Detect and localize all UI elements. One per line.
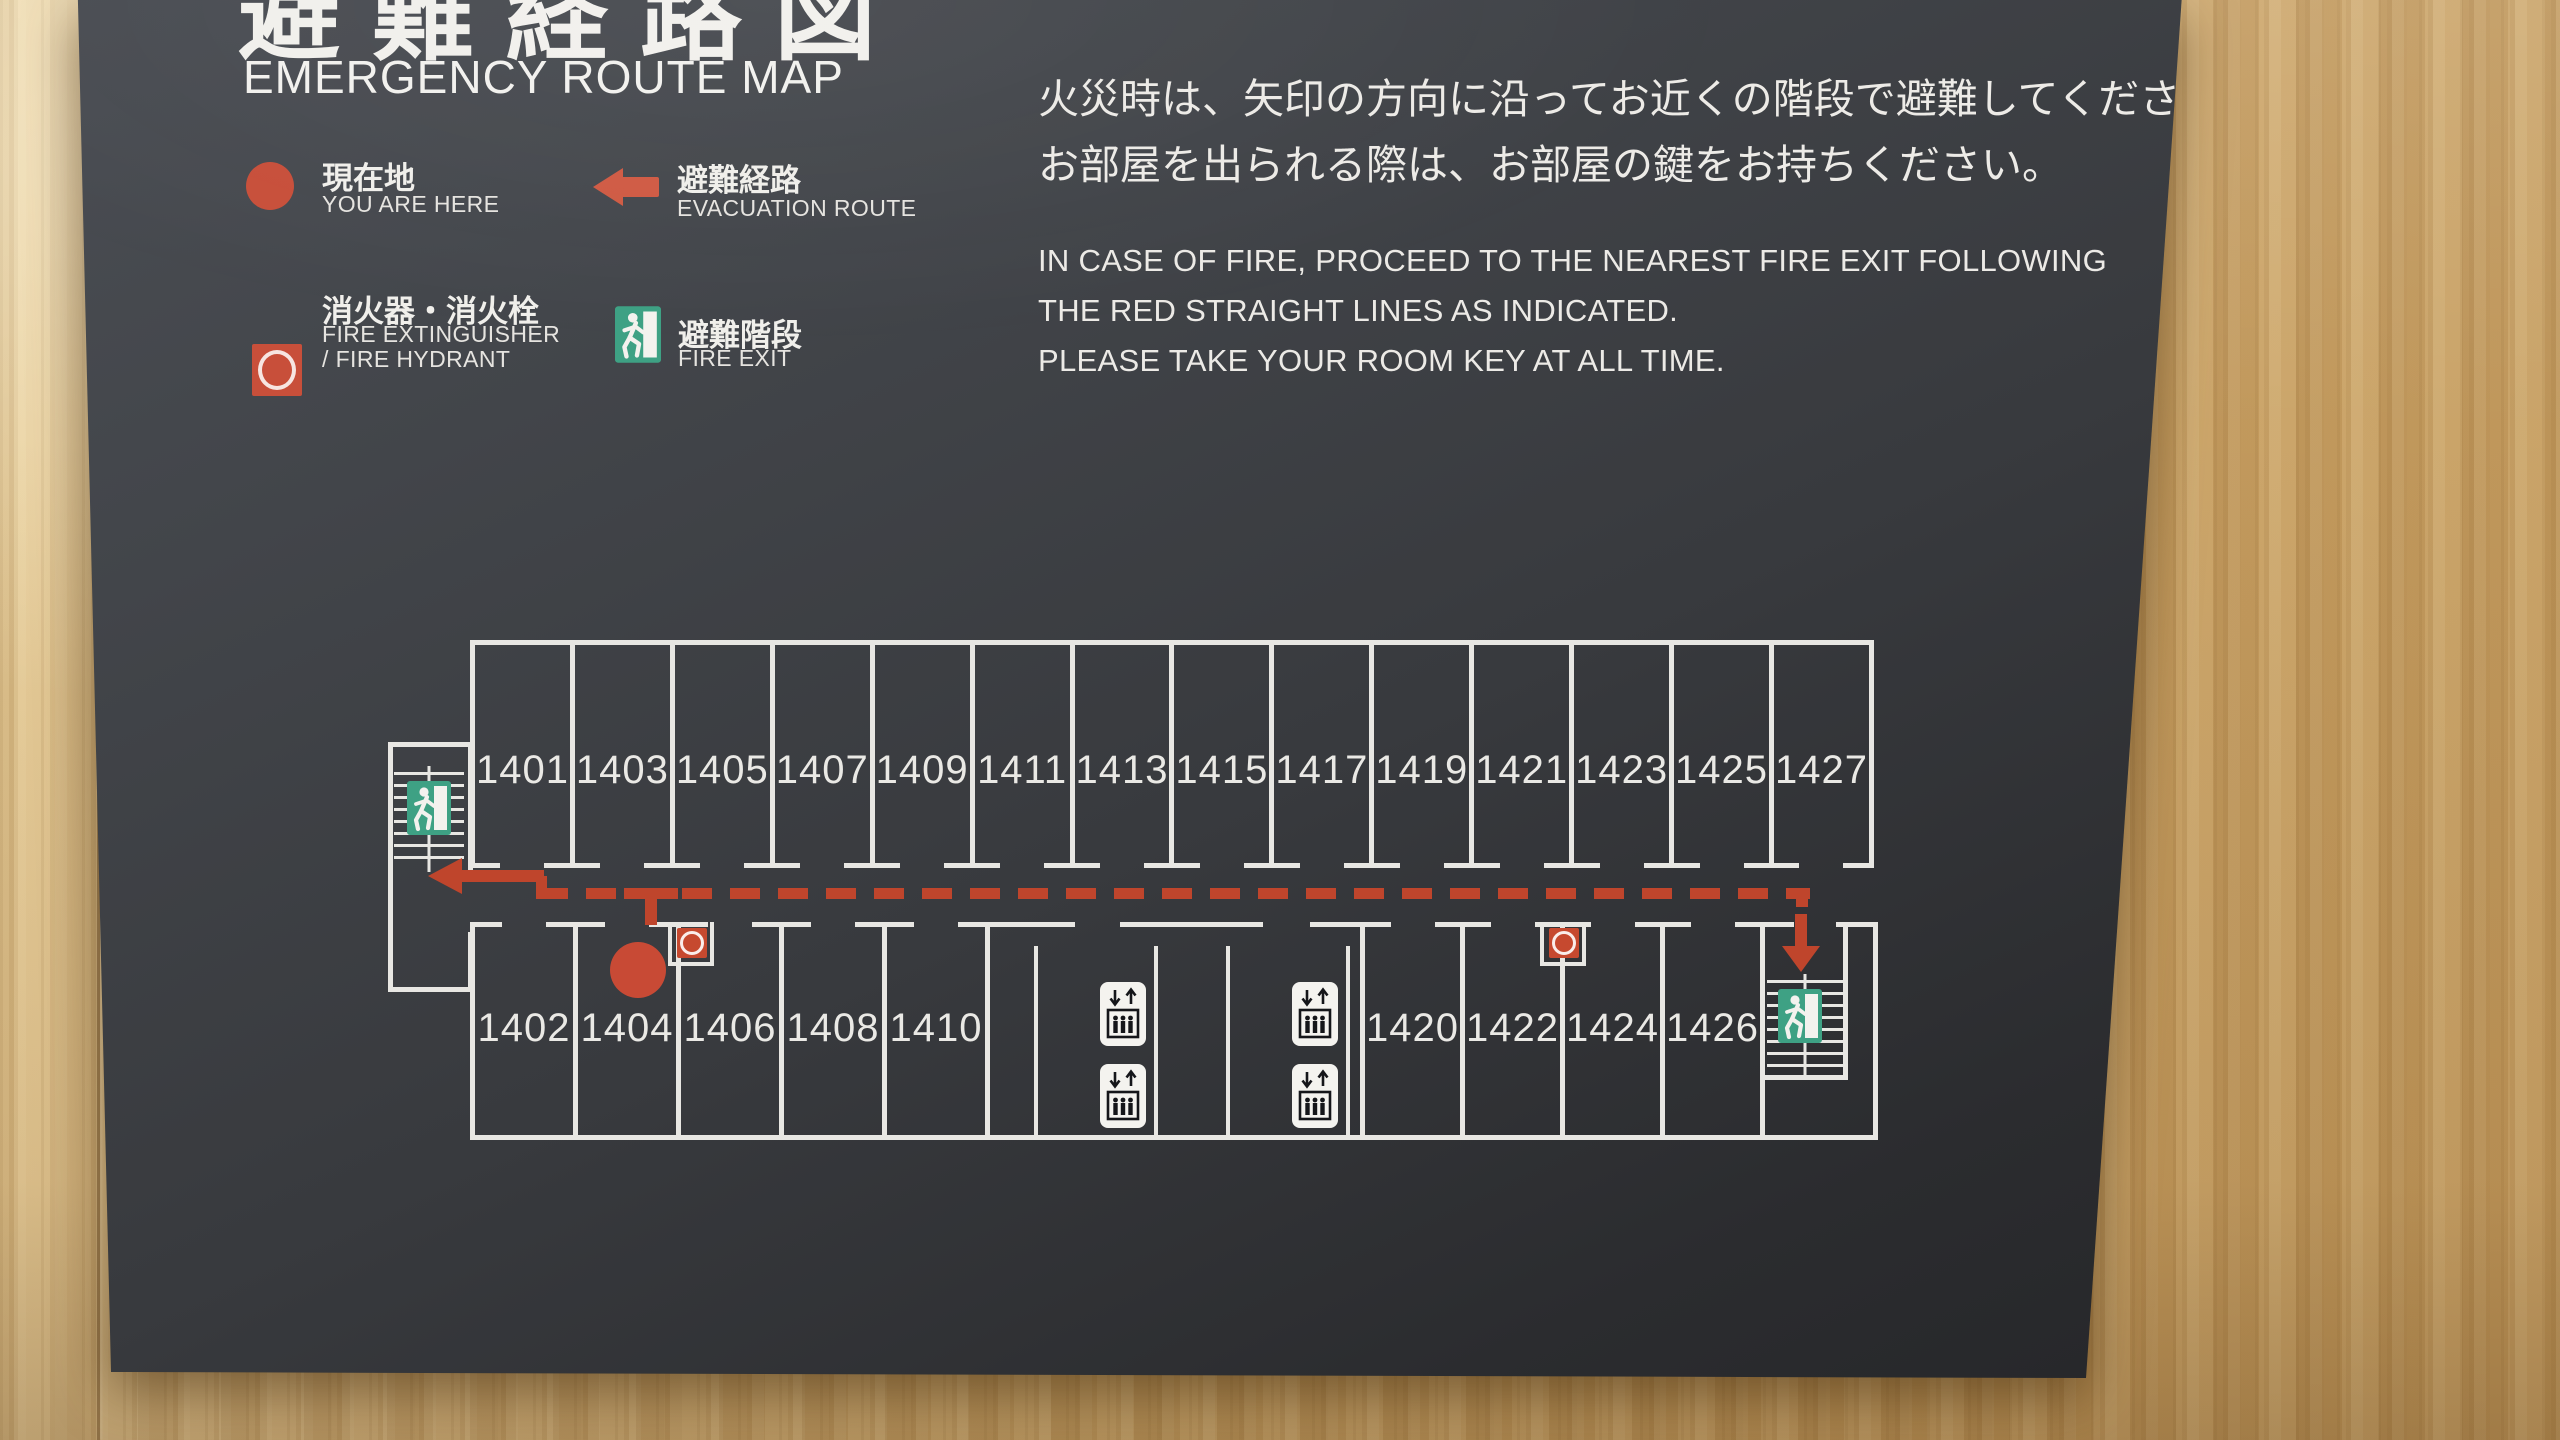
room-cell: 1405 — [670, 645, 770, 868]
room-cell: 1403 — [570, 645, 670, 868]
evacuation-arrow-left-icon — [428, 858, 462, 894]
room-cell: 1423 — [1569, 645, 1669, 868]
room-cell: 1420 — [1365, 922, 1460, 1135]
notice-japanese-line2: お部屋を出られる際は、お部屋の鍵をお持ちください。 — [1038, 132, 2262, 198]
emergency-sign-panel: 避難経路図 EMERGENCY ROUTE MAP 火災時は、矢印の方向に沿って… — [0, 0, 2560, 1440]
notice-english-line1: IN CASE OF FIRE, PROCEED TO THE NEAREST … — [1038, 236, 2107, 286]
room-cell: 1411 — [970, 645, 1070, 868]
notice-english: IN CASE OF FIRE, PROCEED TO THE NEAREST … — [1038, 236, 2107, 386]
room-cell: 1402 — [475, 922, 573, 1135]
fire-extinguisher-marker — [677, 928, 707, 958]
arrow-stem — [619, 177, 659, 197]
legend-you-are-here-jp: 現在地 — [322, 153, 415, 198]
legend-fire-exit-en: FIRE EXIT — [678, 345, 792, 372]
fire-exit-icon — [407, 780, 451, 836]
you-are-here-dot — [610, 942, 666, 998]
legend-you-are-here-en: YOU ARE HERE — [322, 191, 499, 218]
legend-evacuation-route-en: EVACUATION ROUTE — [677, 195, 916, 222]
fire-exit-icon — [1778, 988, 1822, 1044]
notice-english-line2: THE RED STRAIGHT LINES AS INDICATED. — [1038, 286, 2107, 336]
fire-extinguisher-marker — [1549, 928, 1579, 958]
floor-plan: 1401 1403 1405 1407 1409 1411 1413 1415 … — [388, 630, 1880, 1160]
room-cell: 1413 — [1070, 645, 1170, 868]
notice-japanese-line1: 火災時は、矢印の方向に沿ってお近くの階段で避難してください。 — [1038, 66, 2262, 132]
legend-fire-extinguisher-en1: FIRE EXTINGUISHER — [322, 321, 560, 348]
elevator-icon — [1100, 982, 1146, 1046]
evacuation-arrow-down-stem — [1795, 914, 1807, 948]
notice-japanese: 火災時は、矢印の方向に沿ってお近くの階段で避難してください。 お部屋を出られる際… — [1038, 66, 2262, 198]
wall — [1310, 922, 1360, 927]
room-row-top: 1401 1403 1405 1407 1409 1411 1413 1415 … — [470, 640, 1874, 868]
legend-fire-extinguisher-en2: / FIRE HYDRANT — [322, 346, 510, 373]
evacuation-route-arrow-icon — [593, 168, 659, 206]
legend-fire-extinguisher-jp: 消火器・消火栓 — [322, 286, 539, 331]
you-are-here-icon — [246, 162, 294, 210]
elevator-icon — [1292, 1064, 1338, 1128]
wall — [990, 1135, 1360, 1140]
room-cell: 1419 — [1369, 645, 1469, 868]
legend-fire-exit-jp: 避難階段 — [678, 310, 802, 355]
evacuation-route-dashed-line — [538, 888, 1810, 899]
room-cell: 1409 — [870, 645, 970, 868]
wall — [990, 922, 1075, 927]
room-cell: 1410 — [882, 922, 985, 1135]
room-cell: 1427 — [1769, 645, 1869, 868]
evacuation-arrow-left-stem — [460, 870, 544, 882]
room-cell: 1407 — [770, 645, 870, 868]
legend-evacuation-route-jp: 避難経路 — [677, 155, 801, 200]
sign-title-english: EMERGENCY ROUTE MAP — [243, 50, 844, 104]
elevator-icon — [1292, 982, 1338, 1046]
room-cell: 1421 — [1469, 645, 1569, 868]
arrow-head — [593, 168, 623, 206]
fire-exit-icon — [615, 306, 661, 363]
room-cell: 1425 — [1669, 645, 1769, 868]
route-t-stem — [645, 894, 657, 925]
wall — [1120, 922, 1263, 927]
room-cell: 1426 — [1660, 922, 1760, 1135]
evacuation-arrow-down-icon — [1782, 946, 1820, 972]
route-turn-dash — [1796, 892, 1808, 907]
room-cell: 1415 — [1169, 645, 1269, 868]
room-cell: 1401 — [475, 645, 570, 868]
room-row-bottom-left: 1402 1404 1406 1408 1410 — [470, 922, 990, 1140]
elevator-icon — [1100, 1064, 1146, 1128]
sign-title-japanese: 避難経路図 — [238, 0, 908, 81]
room-cell: 1417 — [1269, 645, 1369, 868]
fire-extinguisher-icon — [252, 344, 302, 396]
notice-english-line3: PLEASE TAKE YOUR ROOM KEY AT ALL TIME. — [1038, 336, 2107, 386]
room-cell: 1408 — [779, 922, 882, 1135]
